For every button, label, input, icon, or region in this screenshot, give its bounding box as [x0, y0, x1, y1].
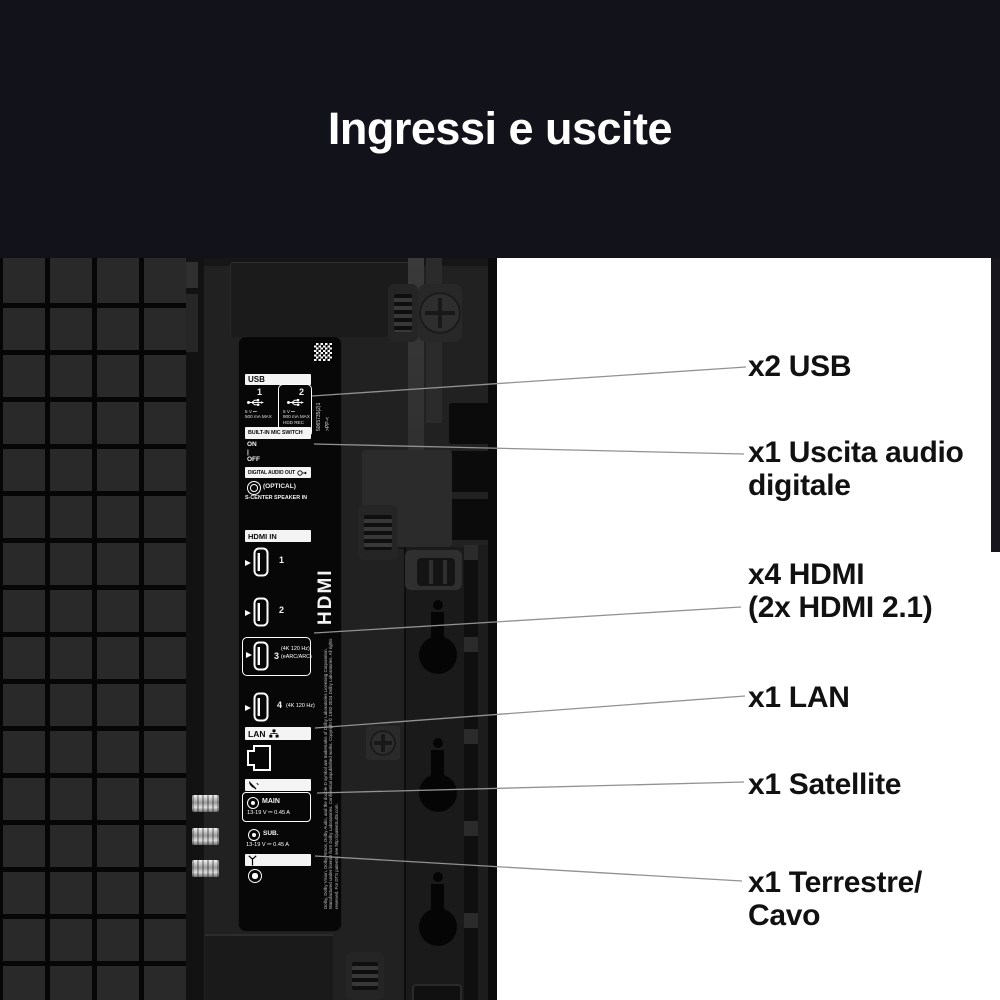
callout-line: x1 Uscita audio [748, 436, 964, 469]
header-band: Ingressi e uscite [0, 0, 1000, 258]
callout-digital-audio: x1 Uscita audio digitale [748, 436, 964, 502]
lead-line-audio [314, 444, 744, 454]
callout-lan: x1 LAN [748, 681, 850, 714]
callout-hdmi: x4 HDMI (2x HDMI 2.1) [748, 558, 932, 624]
lead-line-hdmi [314, 607, 741, 633]
callout-line: x1 LAN [748, 681, 850, 714]
tv-rear-photo: 5065735(2)1 >PP-< USB 1 2 5 V ⎓ 500 mA M… [0, 258, 1000, 1000]
callout-line: Cavo [748, 899, 922, 932]
lead-line-lan [315, 696, 745, 728]
lead-line-usb [312, 367, 746, 396]
callout-line: x4 HDMI [748, 558, 932, 591]
callout-line: x1 Terrestre/ [748, 866, 922, 899]
lead-line-satellite [317, 782, 744, 793]
callout-terrestrial: x1 Terrestre/ Cavo [748, 866, 922, 932]
callout-line: digitale [748, 469, 964, 502]
product-infographic: Ingressi e uscite [0, 0, 1000, 1000]
callout-satellite: x1 Satellite [748, 768, 901, 801]
callout-line: x2 USB [748, 350, 851, 383]
callout-usb: x2 USB [748, 350, 851, 383]
page-title: Ingressi e uscite [328, 103, 672, 155]
callout-line: x1 Satellite [748, 768, 901, 801]
callout-line: (2x HDMI 2.1) [748, 591, 932, 624]
lead-line-terrestrial [315, 856, 742, 881]
